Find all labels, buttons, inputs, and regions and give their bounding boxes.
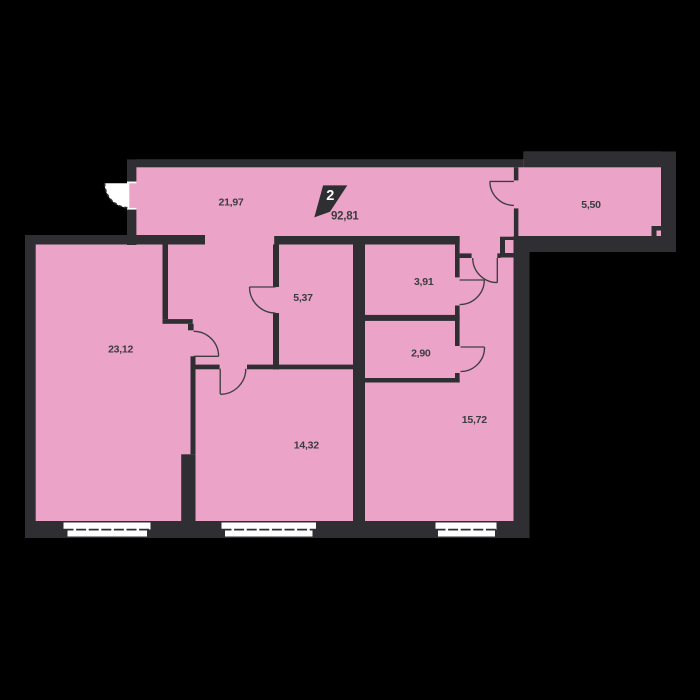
svg-text:5,37: 5,37 [293, 292, 313, 304]
svg-text:14,32: 14,32 [294, 439, 319, 451]
svg-text:15,72: 15,72 [462, 414, 487, 426]
svg-text:5,50: 5,50 [581, 199, 601, 211]
svg-text:92,81: 92,81 [331, 210, 359, 222]
svg-text:2,90: 2,90 [411, 347, 431, 359]
svg-text:21,97: 21,97 [218, 196, 243, 208]
svg-text:3,91: 3,91 [414, 276, 434, 288]
svg-text:23,12: 23,12 [108, 343, 133, 355]
svg-text:2: 2 [326, 188, 334, 204]
